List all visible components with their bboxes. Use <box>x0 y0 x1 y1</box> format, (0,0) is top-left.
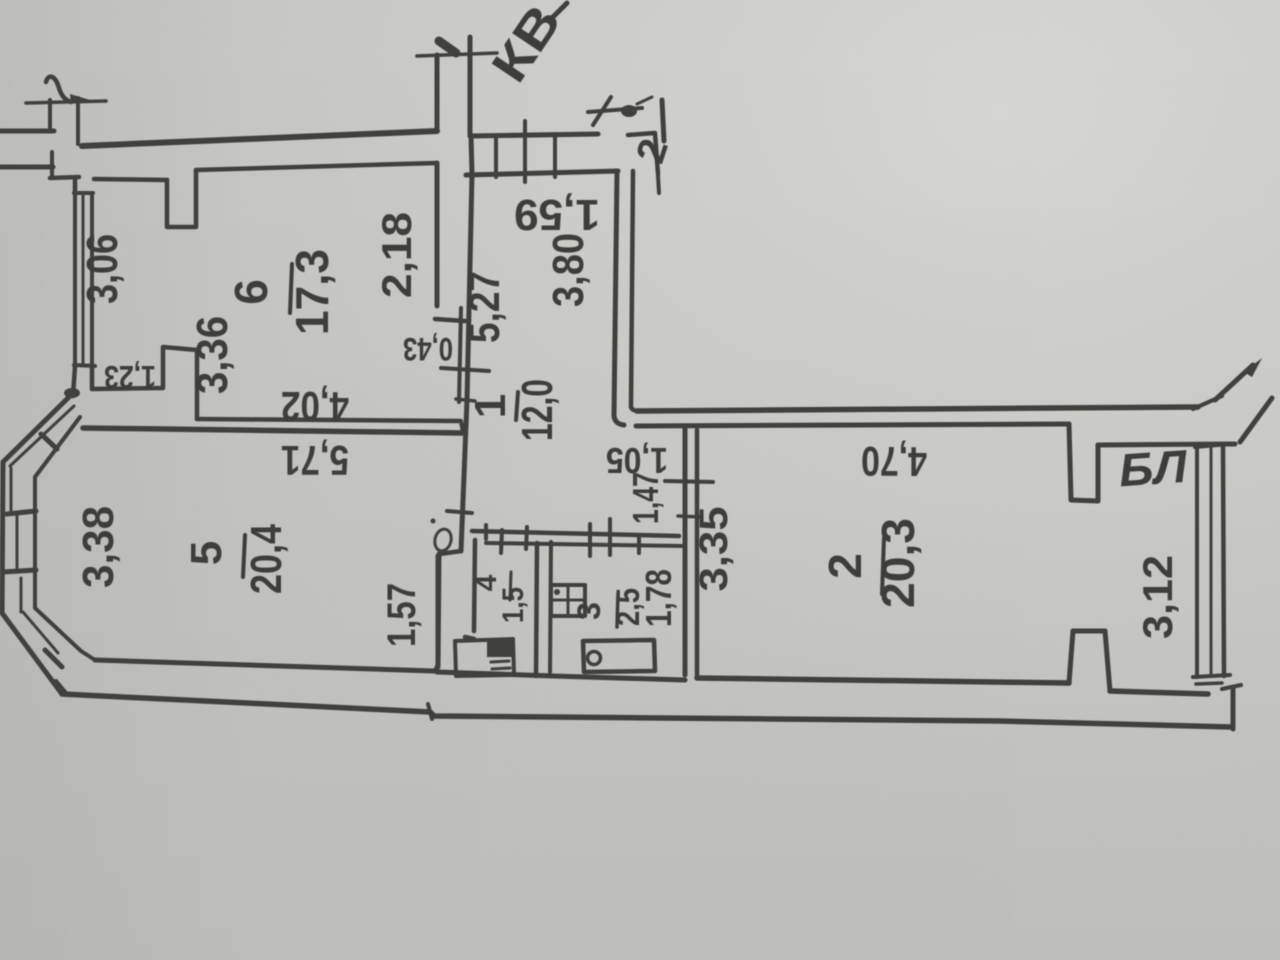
svg-text:3,38: 3,38 <box>74 506 123 588</box>
svg-text:0,43: 0,43 <box>403 331 453 367</box>
svg-text:2: 2 <box>819 553 871 579</box>
svg-text:3,80: 3,80 <box>544 233 593 307</box>
svg-text:2,18: 2,18 <box>373 212 420 298</box>
svg-text:1,23: 1,23 <box>104 359 156 395</box>
svg-text:1,5: 1,5 <box>497 587 530 623</box>
svg-text:1,59: 1,59 <box>514 190 600 239</box>
svg-text:20,3: 20,3 <box>872 518 924 608</box>
svg-text:3,12: 3,12 <box>1134 555 1181 639</box>
svg-text:5,27: 5,27 <box>460 271 509 343</box>
svg-text:3,06: 3,06 <box>78 234 127 304</box>
svg-text:БЛ: БЛ <box>1117 440 1190 497</box>
svg-text:1: 1 <box>466 394 515 418</box>
svg-text:4,70: 4,70 <box>861 438 927 485</box>
svg-text:2,5: 2,5 <box>610 588 646 626</box>
svg-text:1,57: 1,57 <box>380 583 424 647</box>
svg-text:5: 5 <box>182 541 231 565</box>
svg-text:20,4: 20,4 <box>242 524 291 594</box>
svg-text:3: 3 <box>571 602 607 620</box>
svg-text:5,71: 5,71 <box>281 437 349 484</box>
svg-text:12,0: 12,0 <box>513 379 562 441</box>
svg-text:1,47: 1,47 <box>625 472 666 524</box>
svg-text:3,35: 3,35 <box>692 507 736 592</box>
svg-text:17,3: 17,3 <box>286 249 338 335</box>
svg-text:6: 6 <box>225 279 277 305</box>
svg-text:3,36: 3,36 <box>188 316 237 394</box>
svg-text:4,02: 4,02 <box>281 383 349 430</box>
